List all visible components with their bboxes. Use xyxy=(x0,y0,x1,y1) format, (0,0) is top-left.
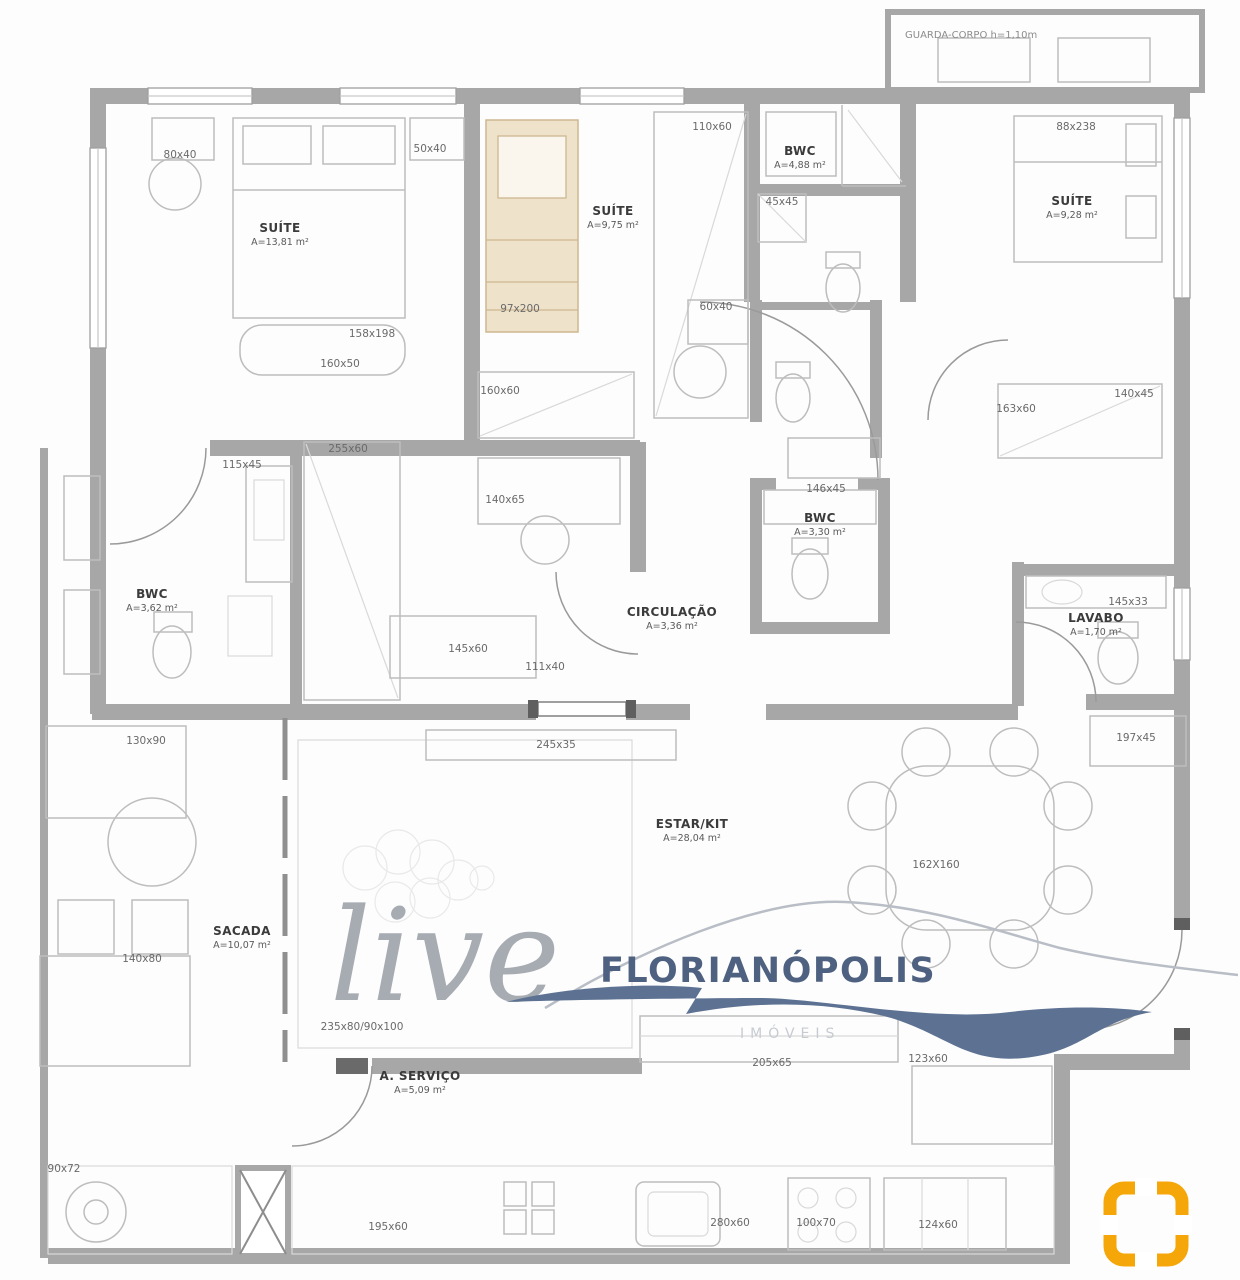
dimension-label: 158x198 xyxy=(349,328,395,340)
dimension-label: 45x45 xyxy=(766,196,799,208)
dimension-label: 145x60 xyxy=(448,643,488,655)
dimension-label: 50x40 xyxy=(414,143,447,155)
sliding-door xyxy=(538,702,626,716)
dimension-label: 100x70 xyxy=(796,1217,836,1229)
dimension-label: 140x45 xyxy=(1114,388,1154,400)
dimension-label: 195x60 xyxy=(368,1221,408,1233)
dimension-label: 111x40 xyxy=(525,661,565,673)
dimension-label: 162X160 xyxy=(912,859,959,871)
dimension-label: 80x40 xyxy=(164,149,197,161)
room-area-label: A=9,28 m² xyxy=(1046,210,1098,221)
dimension-label: 115x45 xyxy=(222,459,262,471)
room-area-label: A=9,75 m² xyxy=(587,220,639,231)
dimension-label: 255x60 xyxy=(328,443,368,455)
dimension-label: 145x33 xyxy=(1108,596,1148,608)
watermark-logo: live FLORIANÓPOLIS IMÓVEIS xyxy=(330,830,1238,1059)
room-area-label: A=28,04 m² xyxy=(663,833,721,844)
roof-balcony: GUARDA-CORPO h=1,10m xyxy=(888,12,1202,90)
room-label: SUÍTE xyxy=(592,203,633,218)
dimension-label: 90x72 xyxy=(48,1163,81,1175)
room-area-label: A=4,88 m² xyxy=(774,160,826,171)
dimension-label: 197x45 xyxy=(1116,732,1156,744)
room-area-label: A=3,36 m² xyxy=(646,621,698,632)
service-door-leaf xyxy=(336,1058,368,1074)
room-label: SUÍTE xyxy=(259,220,300,235)
brand-mark-icon xyxy=(1100,1178,1192,1270)
dimension-label: 60x40 xyxy=(700,301,733,313)
room-label: ESTAR/KIT xyxy=(656,817,729,831)
dimension-label: 160x60 xyxy=(480,385,520,397)
room-label: LAVABO xyxy=(1068,611,1124,625)
room-label: BWC xyxy=(804,511,836,525)
dimension-label: 130x90 xyxy=(126,735,166,747)
walls xyxy=(44,88,1190,1262)
dimension-label: 160x50 xyxy=(320,358,360,370)
room-area-label: A=1,70 m² xyxy=(1070,627,1122,638)
room-label: BWC xyxy=(136,587,168,601)
floor-plan: GUARDA-CORPO h=1,10m xyxy=(0,0,1240,1280)
room-area-label: A=10,07 m² xyxy=(213,940,271,951)
dimension-label: 123x60 xyxy=(908,1053,948,1065)
dimension-label: 163x60 xyxy=(996,403,1036,415)
room-area-label: A=3,30 m² xyxy=(794,527,846,538)
room-label: BWC xyxy=(784,144,816,158)
logo-city-name: FLORIANÓPOLIS xyxy=(600,949,936,991)
room-label: SACADA xyxy=(213,924,271,938)
dimension-label: 235x80/90x100 xyxy=(321,1021,404,1033)
logo-subtitle: IMÓVEIS xyxy=(740,1024,840,1042)
floor-plan-page: GUARDA-CORPO h=1,10m xyxy=(0,0,1240,1280)
dimension-label: 88x238 xyxy=(1056,121,1096,133)
dimension-label: 146x45 xyxy=(806,483,846,495)
dimension-label: 245x35 xyxy=(536,739,576,751)
dimension-label: 110x60 xyxy=(692,121,732,133)
room-label: CIRCULAÇÃO xyxy=(627,604,717,619)
dimension-label: 97x200 xyxy=(500,303,540,315)
balcony-rail-label: GUARDA-CORPO h=1,10m xyxy=(905,30,1037,41)
dimension-label: 140x65 xyxy=(485,494,525,506)
room-area-label: A=5,09 m² xyxy=(394,1085,446,1096)
dimension-label: 124x60 xyxy=(918,1219,958,1231)
room-label: A. SERVIÇO xyxy=(379,1069,460,1083)
room-area-label: A=13,81 m² xyxy=(251,237,309,248)
room-label: SUÍTE xyxy=(1051,193,1092,208)
logo-script-word: live xyxy=(330,882,560,1031)
dimension-label: 140x80 xyxy=(122,953,162,965)
dimension-label: 280x60 xyxy=(710,1217,750,1229)
room-area-label: A=3,62 m² xyxy=(126,603,178,614)
dimension-label: 205x65 xyxy=(752,1057,792,1069)
